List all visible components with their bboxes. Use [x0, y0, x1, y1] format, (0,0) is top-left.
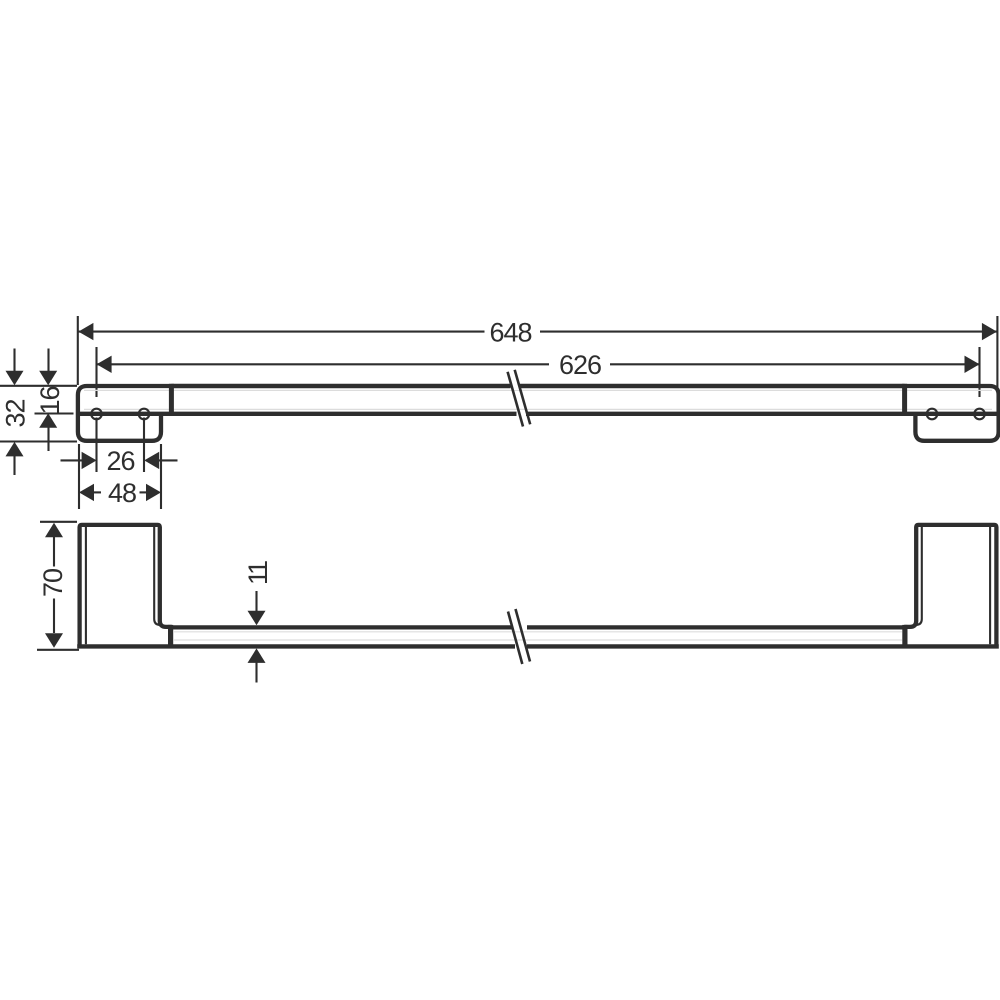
svg-text:48: 48 — [108, 478, 136, 508]
svg-text:70: 70 — [38, 569, 68, 597]
svg-text:648: 648 — [489, 318, 531, 348]
svg-text:16: 16 — [35, 386, 65, 414]
svg-text:11: 11 — [243, 561, 273, 585]
svg-text:32: 32 — [1, 399, 31, 427]
svg-text:26: 26 — [106, 446, 134, 476]
svg-text:626: 626 — [559, 350, 601, 380]
